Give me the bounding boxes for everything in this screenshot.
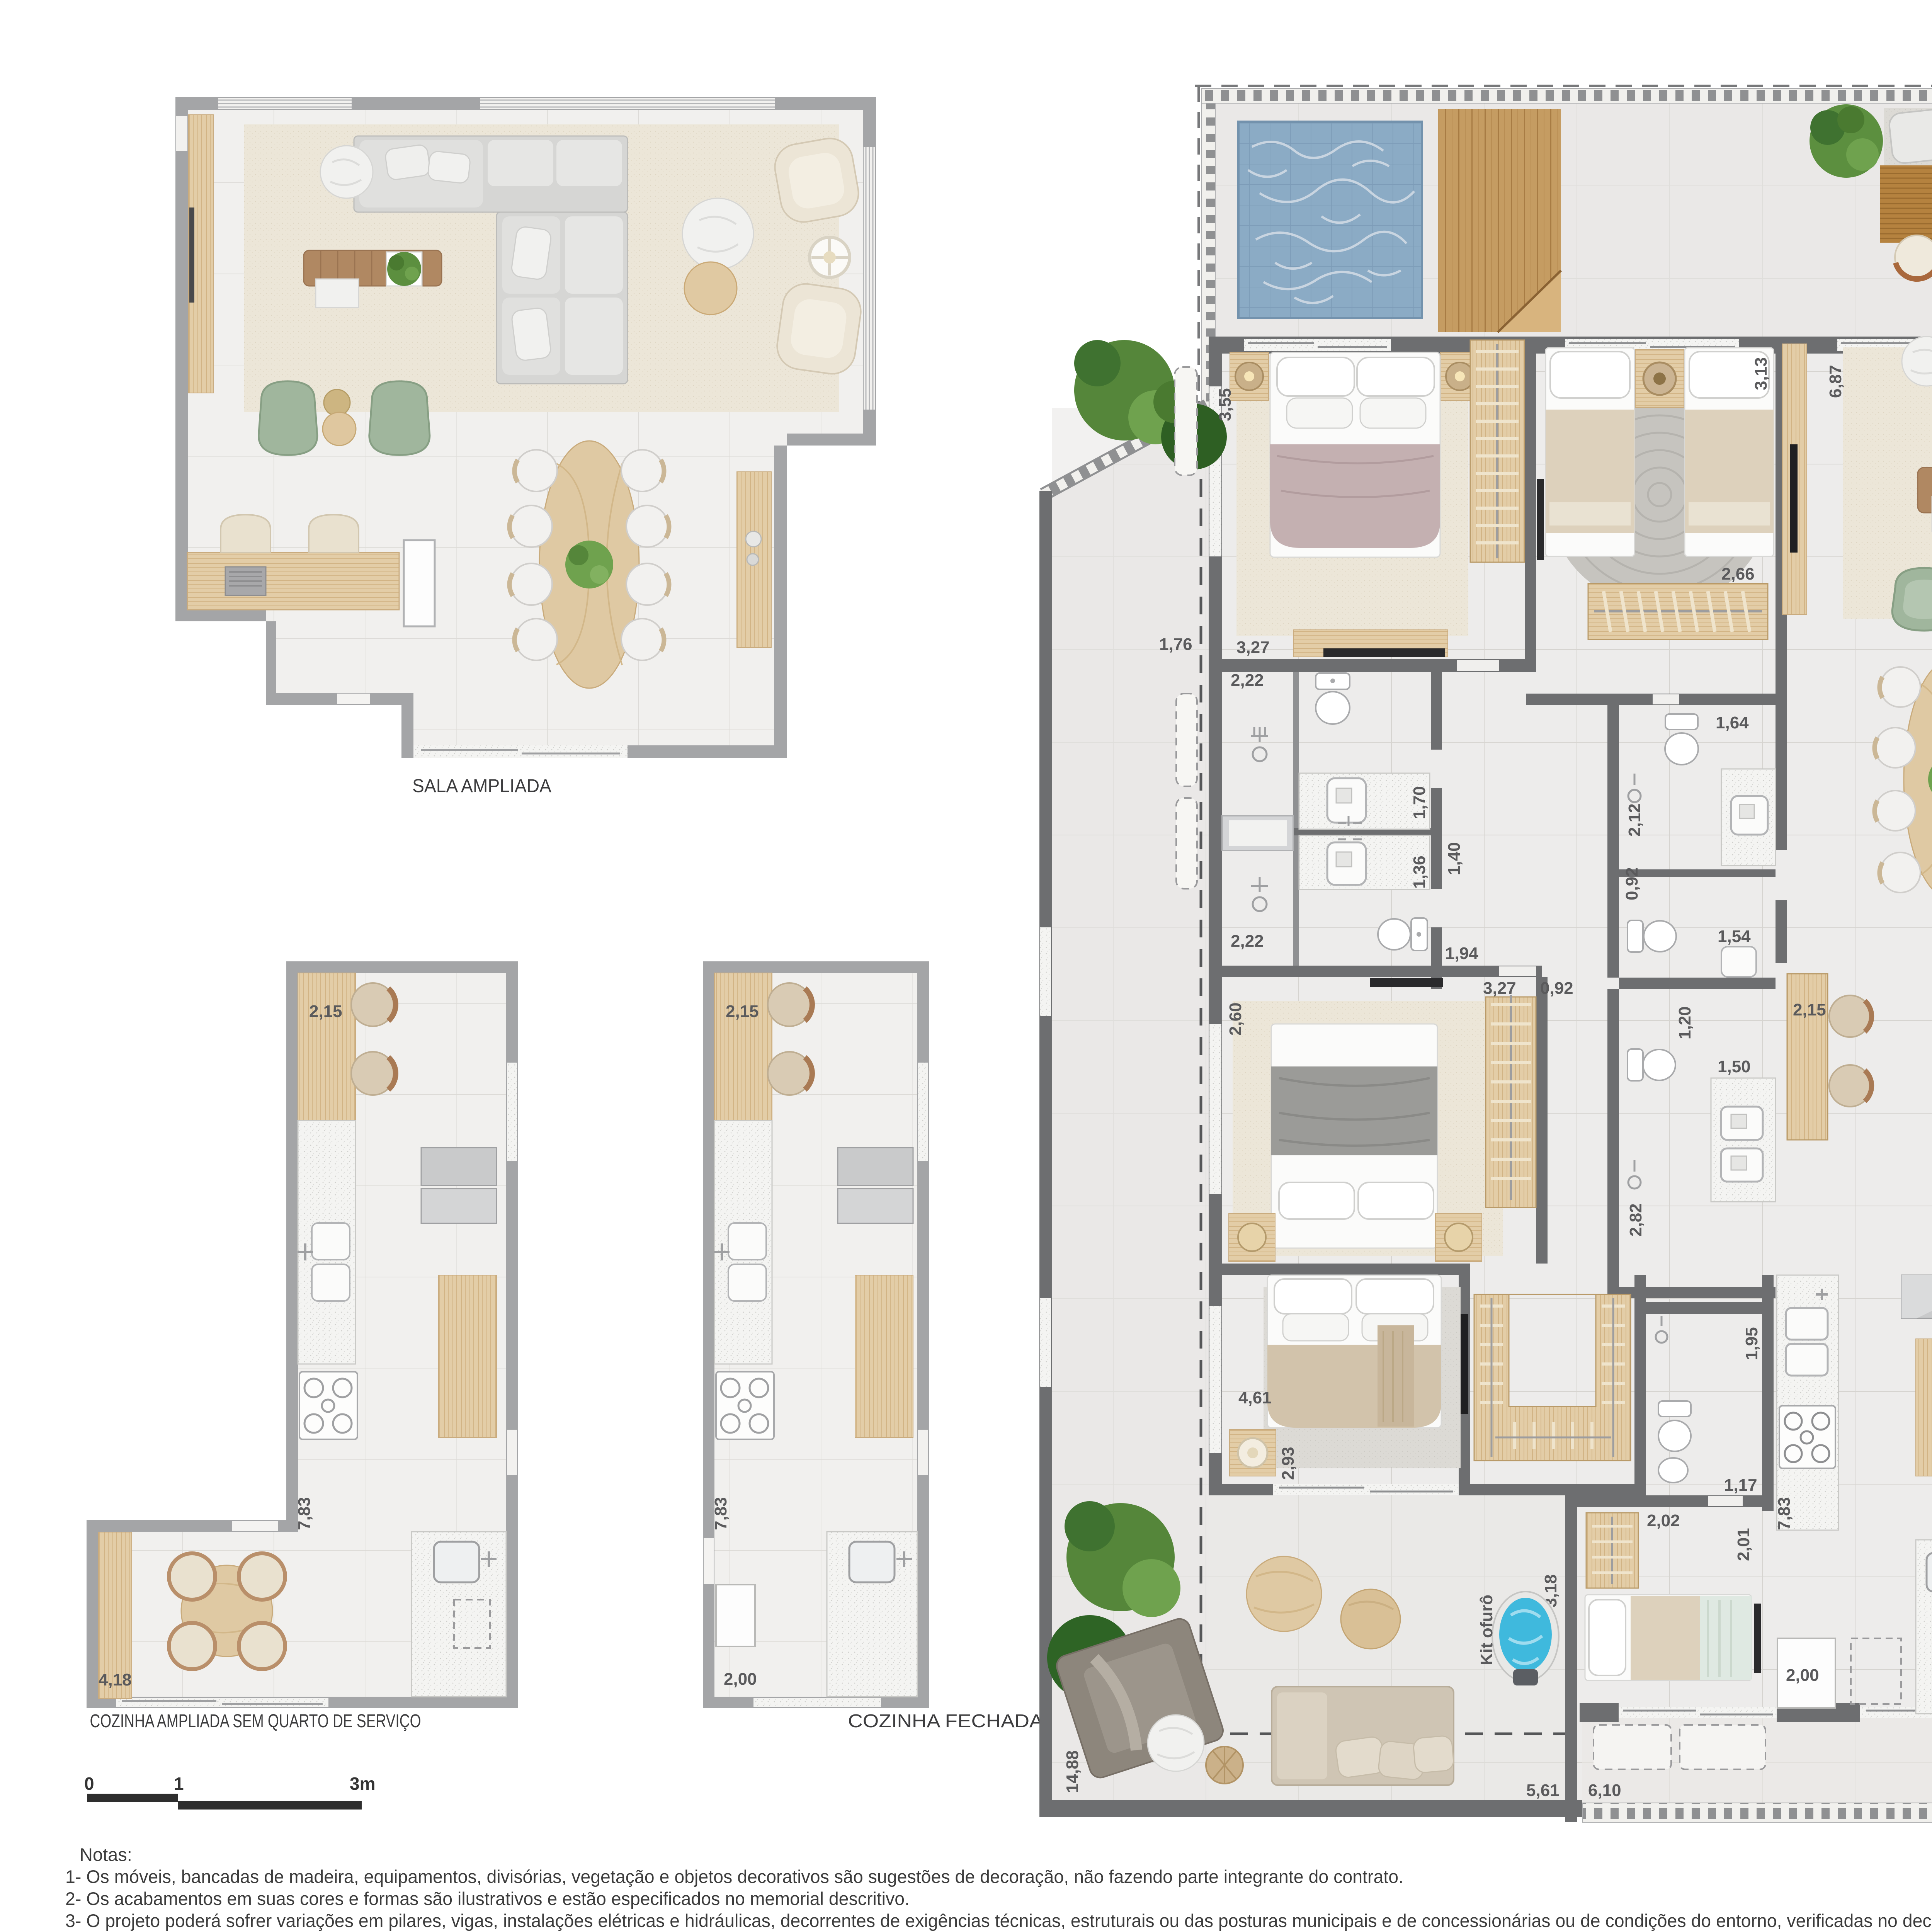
svg-text:2,01: 2,01: [1734, 1528, 1753, 1561]
svg-text:4,18: 4,18: [99, 1670, 132, 1689]
svg-text:3m: 3m: [350, 1774, 375, 1794]
svg-text:2,60: 2,60: [1226, 1002, 1245, 1036]
svg-text:Notas:: Notas:: [80, 1844, 132, 1865]
svg-text:2,00: 2,00: [724, 1670, 757, 1689]
svg-text:2,15: 2,15: [726, 1002, 759, 1021]
svg-text:0,92: 0,92: [1540, 979, 1573, 998]
svg-text:1,76: 1,76: [1159, 635, 1192, 654]
svg-text:1: 1: [174, 1774, 184, 1794]
svg-text:1,50: 1,50: [1718, 1057, 1751, 1076]
svg-text:2,15: 2,15: [1793, 1000, 1826, 1019]
svg-text:2,00: 2,00: [1786, 1666, 1819, 1685]
svg-text:2,93: 2,93: [1279, 1447, 1298, 1480]
svg-text:0,92: 0,92: [1622, 867, 1641, 900]
svg-text:2,66: 2,66: [1721, 565, 1755, 583]
svg-text:1,64: 1,64: [1716, 713, 1749, 732]
svg-text:2,22: 2,22: [1231, 671, 1264, 690]
svg-text:7,83: 7,83: [711, 1497, 730, 1530]
svg-text:COZINHA FECHADA: COZINHA FECHADA: [848, 1711, 1043, 1731]
svg-text:4,61: 4,61: [1238, 1388, 1272, 1407]
svg-text:1,54: 1,54: [1718, 927, 1751, 946]
svg-text:1,36: 1,36: [1410, 855, 1429, 889]
svg-text:3,55: 3,55: [1216, 388, 1235, 421]
svg-text:6,87: 6,87: [1826, 365, 1845, 398]
svg-text:2,12: 2,12: [1625, 803, 1644, 837]
svg-text:7,83: 7,83: [295, 1497, 314, 1530]
svg-text:2,22: 2,22: [1231, 932, 1264, 951]
svg-text:SALA AMPLIADA: SALA AMPLIADA: [412, 776, 551, 796]
svg-text:3,13: 3,13: [1752, 357, 1770, 390]
svg-text:1,70: 1,70: [1410, 786, 1429, 819]
svg-text:3- O projeto poderá sofrer var: 3- O projeto poderá sofrer variações em …: [65, 1910, 1932, 1931]
svg-text:6,10: 6,10: [1588, 1781, 1621, 1800]
svg-text:COZINHA AMPLIADA SEM QUARTO DE: COZINHA AMPLIADA SEM QUARTO DE SERVIÇO: [90, 1711, 421, 1731]
svg-text:0: 0: [84, 1774, 94, 1794]
svg-text:7,83: 7,83: [1775, 1497, 1794, 1530]
svg-text:5,61: 5,61: [1526, 1781, 1560, 1800]
svg-text:3,27: 3,27: [1483, 979, 1516, 998]
svg-text:Kit ofurô: Kit ofurô: [1477, 1595, 1496, 1665]
svg-text:1- Os móveis, bancadas de made: 1- Os móveis, bancadas de madeira, equip…: [65, 1866, 1403, 1887]
svg-text:1,94: 1,94: [1445, 944, 1478, 963]
svg-text:3,27: 3,27: [1236, 638, 1270, 657]
svg-text:2,82: 2,82: [1626, 1203, 1645, 1236]
svg-text:2,15: 2,15: [309, 1002, 342, 1021]
svg-text:1,20: 1,20: [1675, 1006, 1694, 1039]
svg-text:2,02: 2,02: [1647, 1511, 1680, 1530]
svg-text:1,40: 1,40: [1445, 842, 1464, 875]
svg-text:2- Os acabamentos em suas core: 2- Os acabamentos em suas cores e formas…: [65, 1888, 910, 1909]
svg-text:1,17: 1,17: [1724, 1476, 1757, 1495]
svg-text:1,95: 1,95: [1742, 1327, 1761, 1360]
svg-text:14,88: 14,88: [1063, 1750, 1082, 1793]
